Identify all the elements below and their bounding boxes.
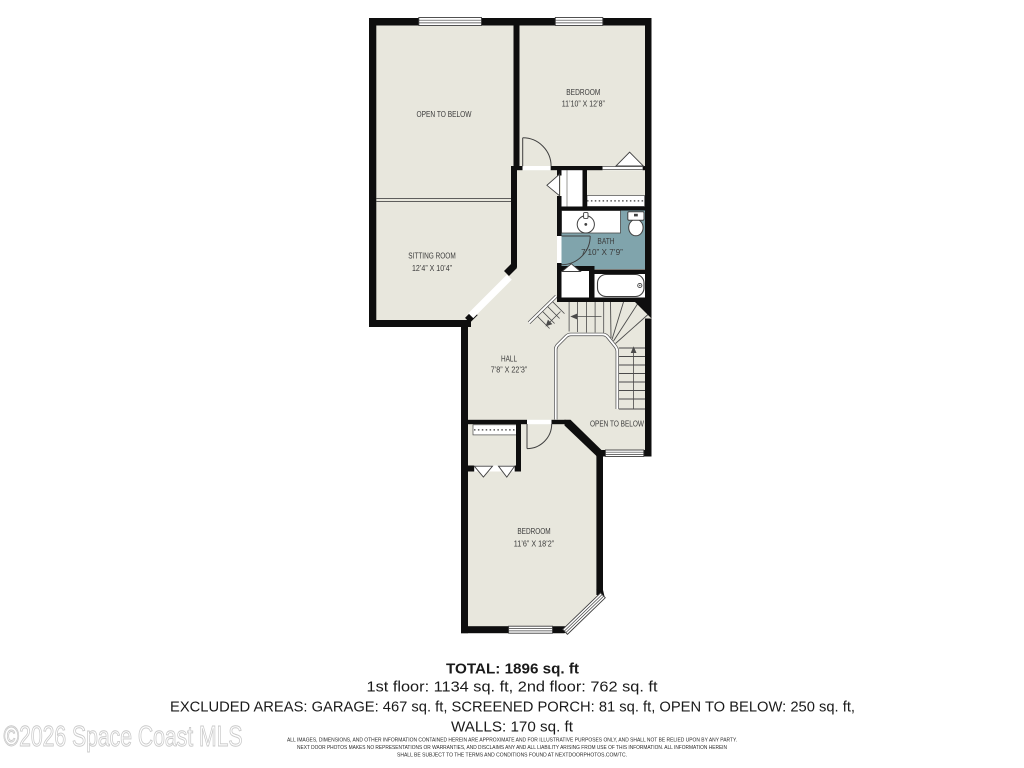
svg-text:©2026 Space Coast MLS: ©2026 Space Coast MLS bbox=[4, 721, 243, 753]
svg-text:BATH: BATH bbox=[597, 236, 614, 246]
svg-text:SHALL BE SUBJECT TO THE TERMS: SHALL BE SUBJECT TO THE TERMS AND CONDIT… bbox=[397, 752, 627, 758]
svg-text:12’4” X 10’4”: 12’4” X 10’4” bbox=[412, 264, 452, 273]
svg-text:WALLS: 170 sq. ft: WALLS: 170 sq. ft bbox=[451, 719, 573, 735]
svg-text:1st floor: 1134 sq. ft, 2nd fl: 1st floor: 1134 sq. ft, 2nd floor: 762 s… bbox=[367, 679, 658, 695]
svg-text:ALL IMAGES, DIMENSIONS, AND OT: ALL IMAGES, DIMENSIONS, AND OTHER INFORM… bbox=[287, 737, 737, 743]
svg-text:OPEN TO BELOW: OPEN TO BELOW bbox=[417, 109, 473, 119]
svg-text:SITTING ROOM: SITTING ROOM bbox=[408, 251, 456, 261]
svg-text:BEDROOM: BEDROOM bbox=[517, 526, 550, 536]
svg-text:BEDROOM: BEDROOM bbox=[566, 87, 600, 97]
svg-text:HALL: HALL bbox=[501, 354, 517, 364]
svg-text:11’6” X 18’2”: 11’6” X 18’2” bbox=[514, 540, 555, 549]
svg-text:NEXT DOOR PHOTOS MAKES NO REPR: NEXT DOOR PHOTOS MAKES NO REPRESENTATION… bbox=[297, 745, 727, 751]
svg-text:11’10” X 12’8”: 11’10” X 12’8” bbox=[562, 100, 605, 109]
svg-text:TOTAL: 1896 sq. ft: TOTAL: 1896 sq. ft bbox=[446, 662, 579, 678]
svg-text:OPEN TO BELOW: OPEN TO BELOW bbox=[590, 419, 645, 429]
svg-text:EXCLUDED AREAS: GARAGE: 467 sq: EXCLUDED AREAS: GARAGE: 467 sq. ft, SCRE… bbox=[170, 700, 855, 716]
svg-text:7’8” X 22’3”: 7’8” X 22’3” bbox=[491, 366, 528, 375]
svg-text:7’10” X 7’9”: 7’10” X 7’9” bbox=[581, 248, 623, 257]
